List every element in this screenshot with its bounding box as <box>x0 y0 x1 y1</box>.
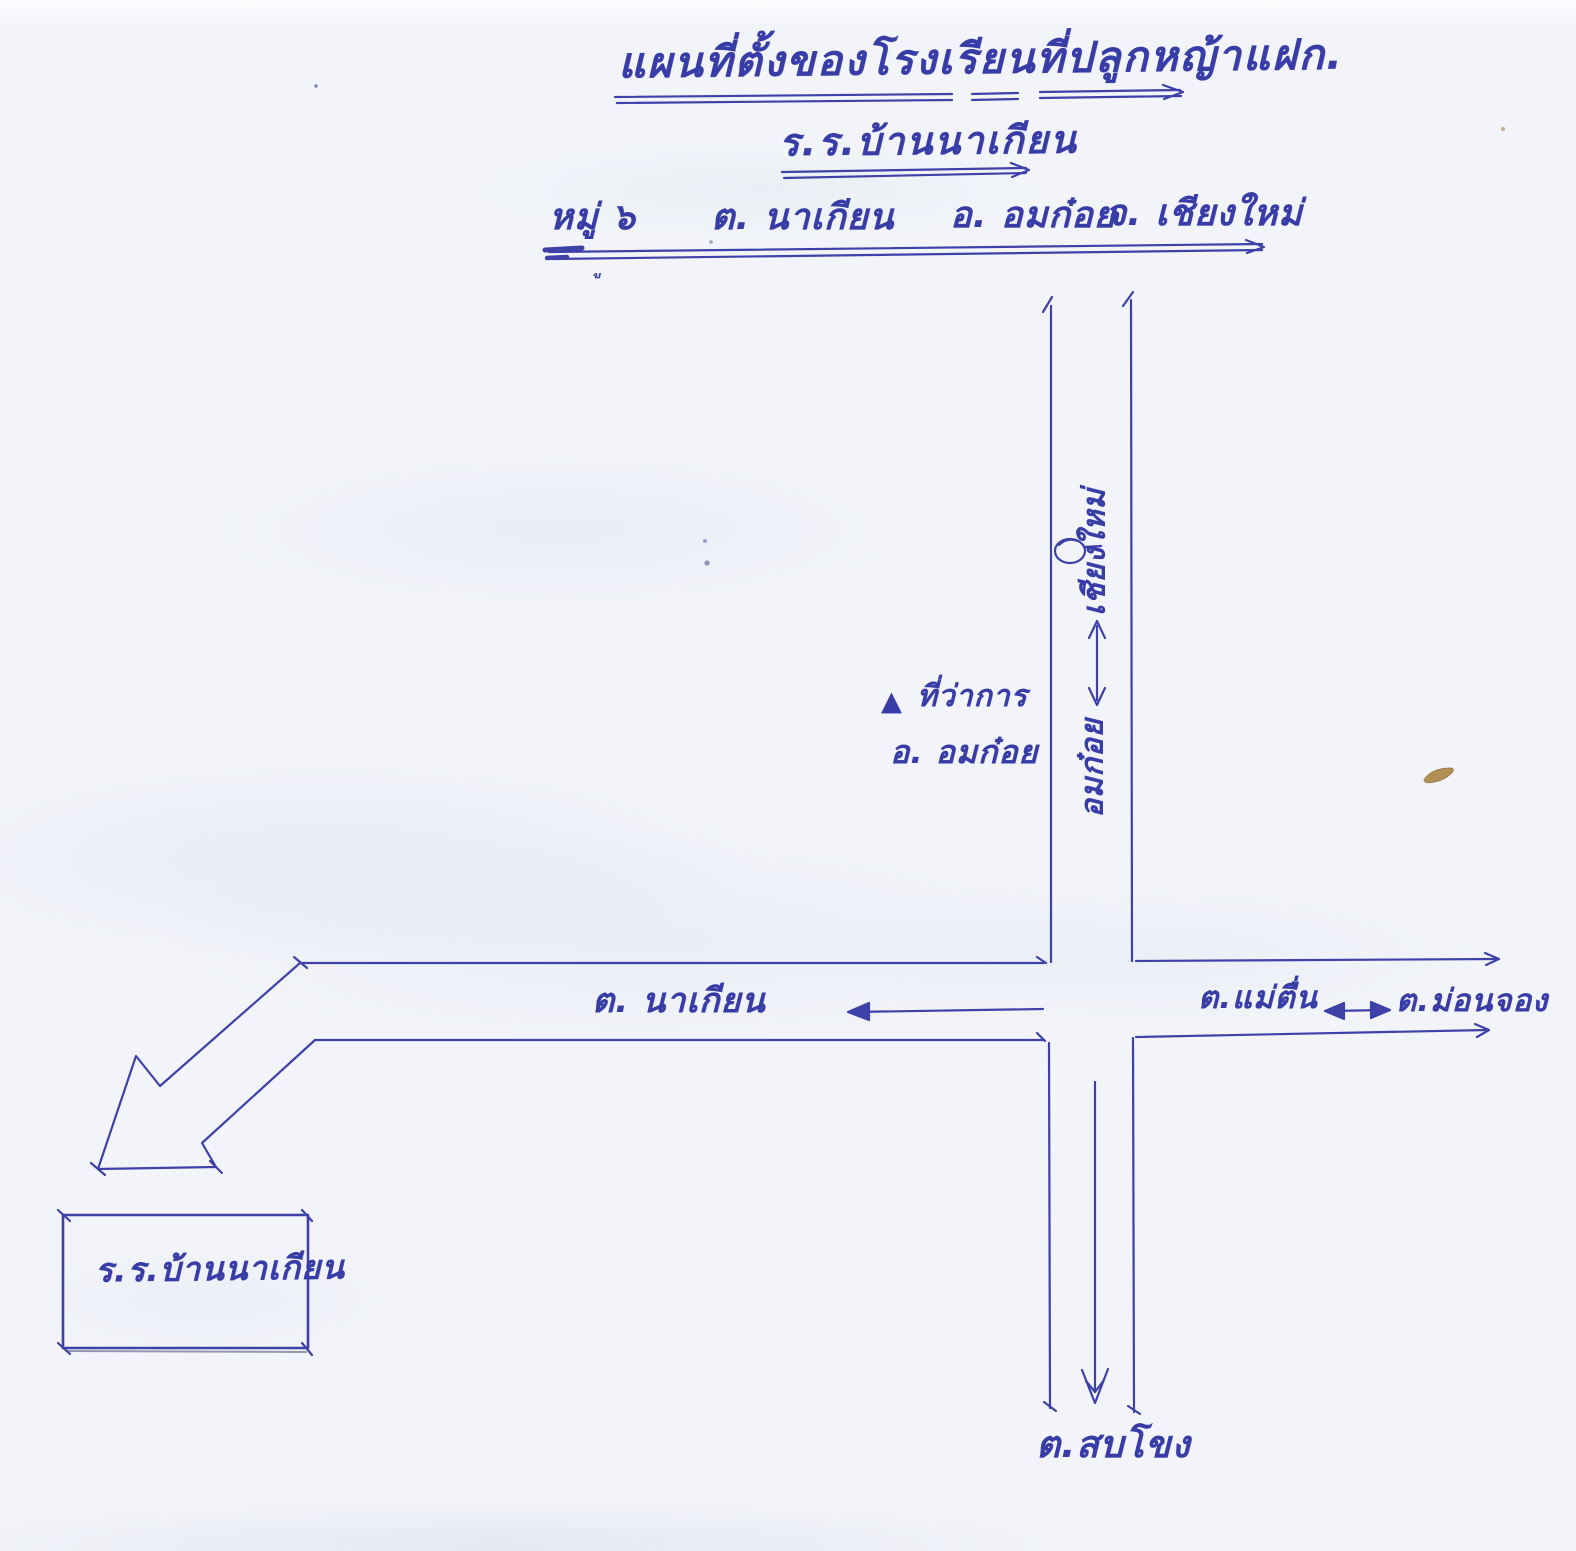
north-road-label-chiangmai: เชียงใหม่ <box>1080 488 1111 616</box>
address-underline <box>545 240 1264 259</box>
nakian-direction-arrow <box>848 1003 1043 1020</box>
district-office-label-line2: อ. อมก๋อย <box>890 736 1038 768</box>
address-district: อ. อมก๋อย <box>950 198 1116 234</box>
address-subdistrict: ต. นาเกียน <box>711 200 894 236</box>
chiangmai-omkoi-double-arrow <box>1089 621 1105 705</box>
maetuen-monjong-double-arrow <box>1325 1002 1390 1019</box>
east-west-road <box>300 953 1499 1041</box>
address-province: จ. เชียงใหม่ <box>1105 196 1303 232</box>
district-office-label-line1: ที่ว่าการ <box>917 682 1028 712</box>
west-road-label-nakian: ต. นาเกียน <box>592 984 766 1018</box>
school-name-underline <box>782 163 1029 178</box>
paper-stain <box>1424 768 1453 783</box>
south-road-label-sobkhong: ต.สบโขง <box>1036 1426 1190 1463</box>
east-road-label-monjong: ต.ม่อนจอง <box>1396 986 1548 1017</box>
stray-vowel-mark: ู <box>603 252 604 276</box>
school-access-road <box>91 957 315 1175</box>
east-road-label-maetuen: ต.แม่ตื่น <box>1198 983 1318 1014</box>
address-village: หมู่ ๖ <box>549 200 636 236</box>
scanned-map-page: แผนที่ตั้งของโรงเรียนที่ปลูกหญ้าแฝก. ร.ร… <box>0 0 1576 1551</box>
south-road <box>1044 1038 1140 1414</box>
south-direction-arrow <box>1082 1082 1108 1403</box>
school-box-label: ร.ร.บ้านนาเกียน <box>95 1250 345 1286</box>
page-title: แผนที่ตั้งของโรงเรียนที่ปลูกหญ้าแฝก. <box>618 34 1344 85</box>
title-underline <box>615 85 1183 103</box>
north-road <box>1043 292 1133 962</box>
north-road-label-omkoi: อมก๋อย <box>1078 718 1109 818</box>
district-office-triangle-icon: ▲ <box>881 688 903 715</box>
school-name-heading: ร.ร.บ้านนาเกียน <box>779 120 1078 161</box>
